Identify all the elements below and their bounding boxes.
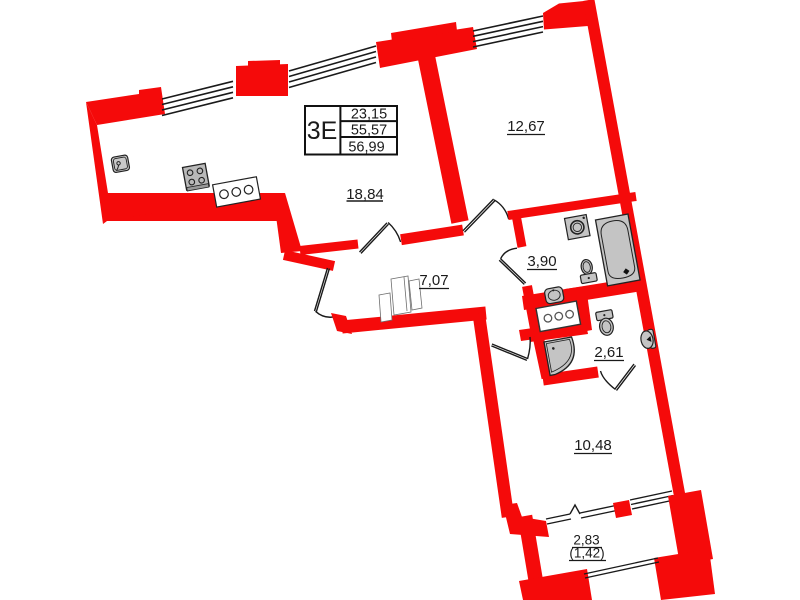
svg-text:(1,42): (1,42)	[569, 546, 604, 561]
svg-text:2,61: 2,61	[594, 344, 623, 361]
svg-text:55,57: 55,57	[351, 122, 387, 138]
svg-text:3,90: 3,90	[527, 253, 556, 270]
svg-text:56,99: 56,99	[348, 139, 384, 155]
svg-text:7,07: 7,07	[419, 272, 448, 289]
svg-text:3Е: 3Е	[307, 117, 338, 145]
svg-text:23,15: 23,15	[351, 107, 387, 123]
svg-text:12,67: 12,67	[507, 118, 545, 135]
svg-text:10,48: 10,48	[574, 437, 612, 454]
